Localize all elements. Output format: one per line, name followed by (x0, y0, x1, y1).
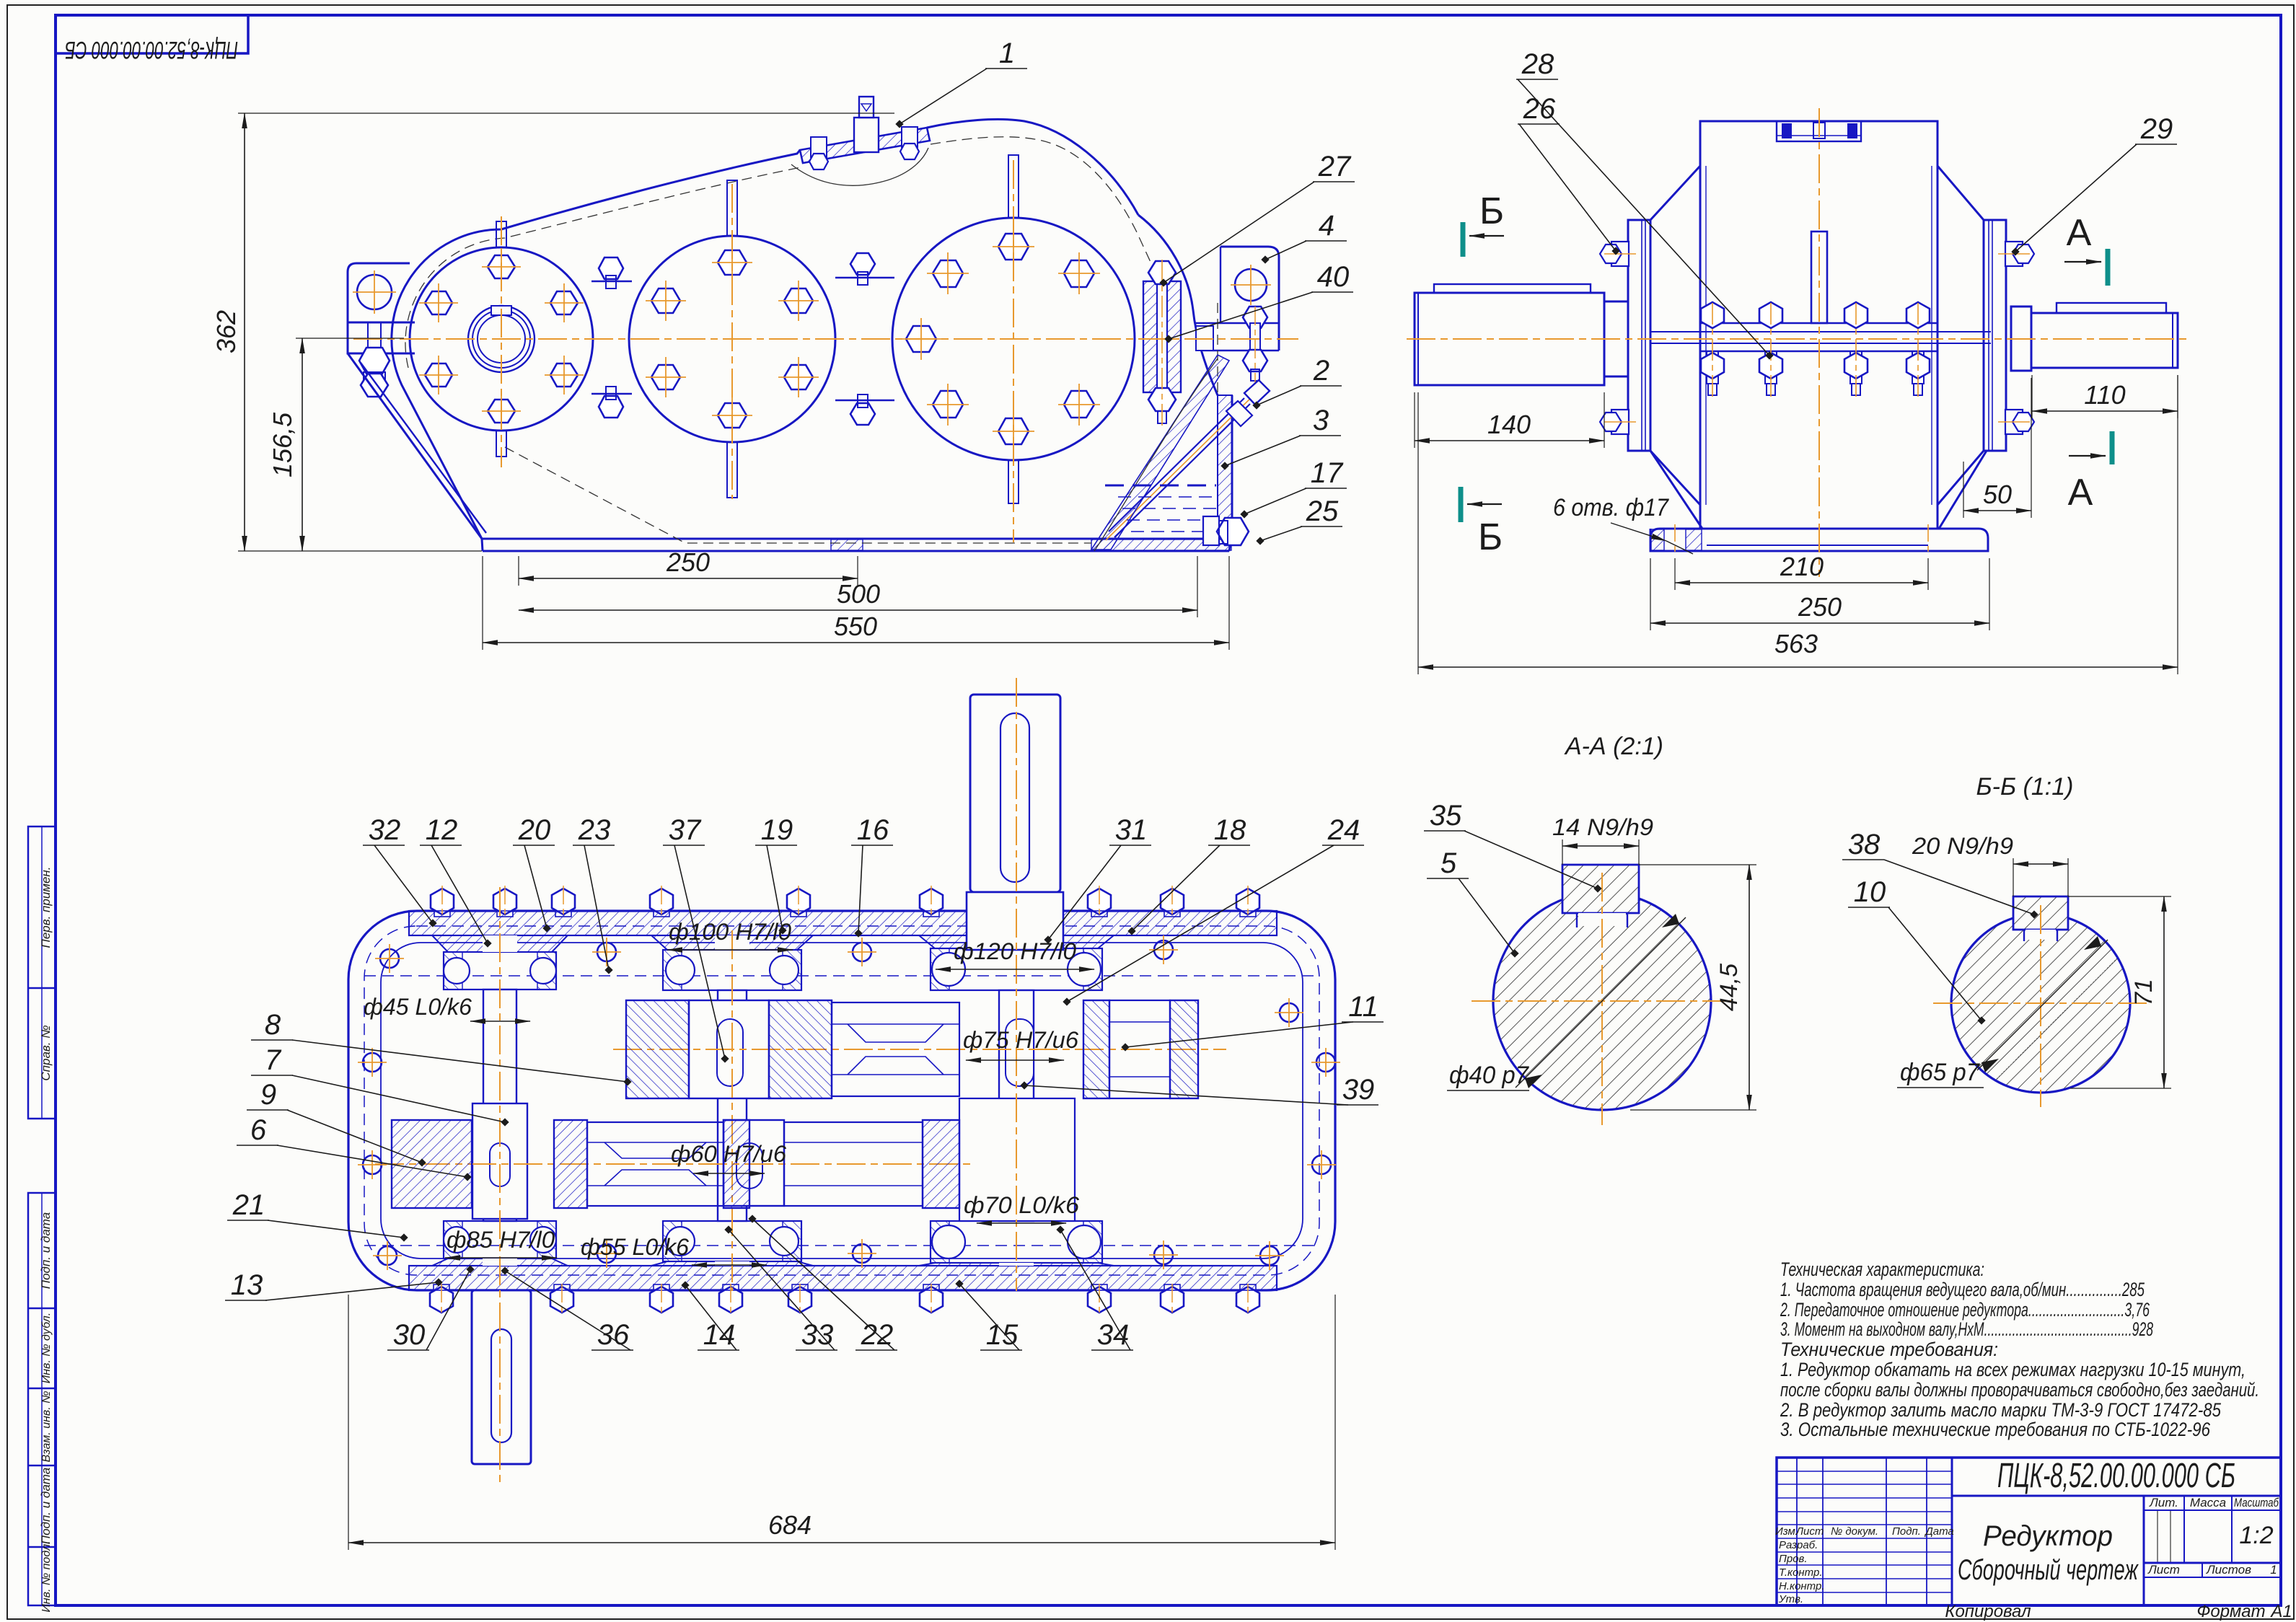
svg-text:Редуктор: Редуктор (1983, 1520, 2113, 1552)
svg-text:Справ. №: Справ. № (39, 1025, 53, 1080)
svg-text:ф45 L0/k6: ф45 L0/k6 (364, 994, 472, 1020)
svg-text:ф75 H7/u6: ф75 H7/u6 (963, 1027, 1078, 1053)
svg-text:Инв. № подл.: Инв. № подл. (40, 1541, 53, 1612)
svg-text:2. Передаточное отношение реду: 2. Передаточное отношение редуктора.....… (1780, 1299, 2150, 1321)
svg-text:1. Редуктор обкатать на всех р: 1. Редуктор обкатать на всех режимах наг… (1780, 1359, 2246, 1380)
svg-text:684: 684 (768, 1510, 811, 1540)
svg-text:34: 34 (1097, 1319, 1130, 1351)
svg-text:20 N9/h9: 20 N9/h9 (1912, 833, 2013, 859)
svg-text:2. В редуктор залить масло мар: 2. В редуктор залить масло марки ТМ-3-9 … (1780, 1399, 2222, 1421)
svg-text:10: 10 (1854, 876, 1886, 908)
svg-text:22: 22 (861, 1319, 894, 1351)
svg-text:140: 140 (1487, 410, 1531, 439)
svg-text:Копировал: Копировал (1945, 1602, 2031, 1621)
svg-text:110: 110 (2084, 380, 2125, 410)
svg-text:20: 20 (518, 814, 551, 846)
svg-text:№ докум.: № докум. (1831, 1525, 1878, 1538)
svg-text:ф65 p7: ф65 p7 (1900, 1059, 1980, 1086)
svg-text:А: А (2067, 212, 2092, 254)
svg-text:после сборки валы должны прово: после сборки валы должны проворачиваться… (1780, 1379, 2259, 1401)
svg-text:Н.контр.: Н.контр. (1779, 1580, 1825, 1592)
svg-text:250: 250 (666, 547, 710, 577)
svg-text:7: 7 (265, 1044, 282, 1076)
svg-text:Изм.: Изм. (1775, 1525, 1798, 1538)
svg-text:ф100 H7/l0: ф100 H7/l0 (669, 919, 791, 945)
svg-text:Лит.: Лит. (2149, 1496, 2178, 1509)
svg-text:36: 36 (597, 1319, 630, 1351)
svg-text:Технические требования:: Технические требования: (1780, 1339, 1998, 1360)
svg-text:ф55 L0/k6: ф55 L0/k6 (581, 1234, 689, 1260)
svg-text:4: 4 (1319, 210, 1334, 242)
svg-text:Лист: Лист (2147, 1563, 2180, 1577)
svg-text:Перв. примен.: Перв. примен. (39, 867, 53, 948)
svg-text:16: 16 (857, 814, 889, 846)
svg-text:14: 14 (703, 1319, 736, 1351)
svg-text:71: 71 (2130, 979, 2158, 1006)
svg-text:Т.контр.: Т.контр. (1779, 1566, 1823, 1579)
svg-text:ф70 L0/k6: ф70 L0/k6 (964, 1192, 1079, 1218)
svg-text:33: 33 (801, 1319, 834, 1351)
svg-text:Подп. и дата: Подп. и дата (39, 1212, 53, 1289)
svg-text:26: 26 (1523, 93, 1556, 125)
svg-text:30: 30 (393, 1319, 426, 1351)
svg-text:1:2: 1:2 (2239, 1522, 2273, 1549)
svg-text:Техническая характеристика:: Техническая характеристика: (1780, 1259, 1984, 1280)
svg-text:ф120 H7/l0: ф120 H7/l0 (954, 938, 1076, 964)
svg-text:Подп. и дата: Подп. и дата (39, 1468, 53, 1544)
svg-text:8: 8 (265, 1009, 281, 1041)
svg-text:Подп.: Подп. (1892, 1525, 1921, 1538)
svg-text:210: 210 (1780, 552, 1824, 581)
svg-text:13: 13 (231, 1269, 263, 1301)
svg-text:250: 250 (1798, 592, 1842, 622)
svg-text:Масштаб: Масштаб (2234, 1496, 2279, 1509)
svg-text:39: 39 (1342, 1074, 1375, 1106)
svg-text:А-А (2:1): А-А (2:1) (1564, 733, 1663, 760)
svg-text:550: 550 (834, 612, 877, 641)
svg-text:9: 9 (260, 1079, 276, 1111)
svg-text:6: 6 (250, 1114, 267, 1146)
svg-text:563: 563 (1774, 629, 1818, 658)
svg-text:31: 31 (1115, 814, 1148, 846)
svg-text:Дата: Дата (1924, 1525, 1954, 1538)
svg-text:27: 27 (1318, 151, 1352, 182)
svg-text:5: 5 (1441, 847, 1457, 879)
svg-text:Взам. инв. №: Взам. инв. № (40, 1391, 53, 1463)
svg-text:Пров.: Пров. (1779, 1553, 1808, 1565)
svg-text:ф40 p7: ф40 p7 (1449, 1062, 1529, 1089)
svg-text:25: 25 (1306, 495, 1339, 527)
svg-text:11: 11 (1348, 991, 1378, 1023)
svg-text:15: 15 (986, 1319, 1019, 1351)
svg-text:Утв.: Утв. (1778, 1593, 1803, 1605)
svg-text:156,5: 156,5 (268, 412, 297, 477)
svg-text:29: 29 (2140, 113, 2173, 145)
svg-text:14 N9/h9: 14 N9/h9 (1552, 814, 1653, 840)
svg-text:38: 38 (1848, 829, 1881, 860)
svg-text:1. Частота вращения ведущего в: 1. Частота вращения ведущего вала,об/мин… (1780, 1279, 2145, 1300)
svg-text:362: 362 (211, 310, 241, 353)
svg-text:Листов: Листов (2206, 1563, 2251, 1577)
svg-text:Разраб.: Разраб. (1779, 1539, 1818, 1551)
svg-text:19: 19 (761, 814, 793, 846)
svg-text:17: 17 (1311, 457, 1344, 489)
svg-text:3: 3 (1313, 405, 1329, 436)
svg-text:37: 37 (669, 814, 702, 846)
svg-text:ф60 H7/u6: ф60 H7/u6 (671, 1141, 786, 1167)
svg-text:32: 32 (369, 814, 401, 846)
svg-text:24: 24 (1327, 814, 1360, 846)
svg-text:500: 500 (837, 579, 880, 609)
svg-text:Масса: Масса (2190, 1496, 2226, 1509)
svg-text:28: 28 (1521, 48, 1554, 80)
svg-text:1: 1 (2270, 1563, 2277, 1577)
svg-text:Сборочный чертеж: Сборочный чертеж (1958, 1554, 2139, 1586)
svg-text:ф85 H7/l0: ф85 H7/l0 (447, 1227, 555, 1253)
svg-text:Б: Б (1479, 190, 1504, 232)
svg-text:Б-Б (1:1): Б-Б (1:1) (1976, 773, 2074, 801)
svg-text:1: 1 (999, 38, 1015, 69)
svg-text:ПЦК-8,52.00.00.000 СБ: ПЦК-8,52.00.00.000 СБ (65, 36, 238, 63)
svg-text:Лист: Лист (1795, 1525, 1824, 1538)
svg-text:18: 18 (1214, 814, 1246, 846)
svg-text:А: А (2068, 472, 2093, 514)
svg-text:ПЦК-8,52.00.00.000 СБ: ПЦК-8,52.00.00.000 СБ (1997, 1457, 2235, 1495)
svg-text:Б: Б (1478, 516, 1503, 558)
svg-text:Инв. № дубл.: Инв. № дубл. (40, 1313, 53, 1383)
svg-text:44,5: 44,5 (1715, 964, 1743, 1011)
svg-text:35: 35 (1430, 800, 1462, 832)
svg-text:21: 21 (232, 1189, 265, 1221)
svg-text:2: 2 (1313, 355, 1329, 387)
svg-text:А1: А1 (2269, 1602, 2292, 1621)
svg-text:3. Остальные технические требо: 3. Остальные технические требования по С… (1780, 1419, 2211, 1440)
svg-text:23: 23 (578, 814, 611, 846)
svg-text:12: 12 (426, 814, 458, 846)
svg-text:40: 40 (1317, 261, 1350, 293)
svg-text:50: 50 (1983, 480, 2012, 509)
svg-text:3. Момент на выходном валу,НхМ: 3. Момент на выходном валу,НхМ..........… (1780, 1318, 2153, 1340)
svg-text:6 отв. ф17: 6 отв. ф17 (1553, 494, 1669, 521)
svg-text:Формат: Формат (2196, 1602, 2265, 1621)
